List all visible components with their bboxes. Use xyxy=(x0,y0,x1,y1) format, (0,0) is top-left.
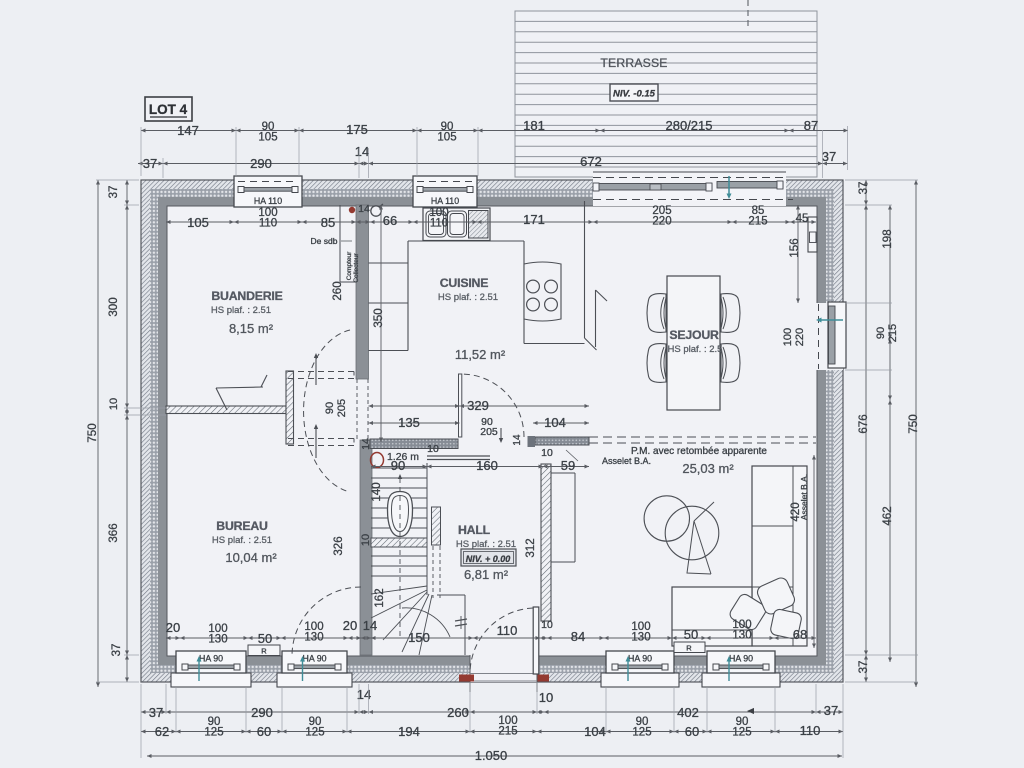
svg-text:Asselet B.A.: Asselet B.A. xyxy=(602,456,651,466)
svg-text:HS plaf. : 2.51: HS plaf. : 2.51 xyxy=(438,292,498,303)
svg-text:366: 366 xyxy=(108,523,120,542)
svg-text:402: 402 xyxy=(677,705,699,720)
svg-text:CUISINE: CUISINE xyxy=(440,276,488,290)
svg-text:90: 90 xyxy=(324,402,336,414)
svg-text:1.050: 1.050 xyxy=(475,748,508,763)
svg-text:60: 60 xyxy=(685,724,699,739)
svg-text:37: 37 xyxy=(858,661,870,674)
svg-text:110: 110 xyxy=(800,723,821,738)
svg-text:14: 14 xyxy=(512,434,523,446)
svg-text:110: 110 xyxy=(259,218,277,230)
svg-text:215: 215 xyxy=(748,216,767,228)
svg-text:37: 37 xyxy=(111,644,123,657)
svg-text:14: 14 xyxy=(363,618,377,633)
svg-text:50: 50 xyxy=(684,627,698,642)
svg-text:14: 14 xyxy=(355,144,369,159)
svg-text:37: 37 xyxy=(824,703,838,718)
svg-text:20: 20 xyxy=(166,620,180,635)
svg-text:37: 37 xyxy=(143,156,157,171)
svg-text:HA 90: HA 90 xyxy=(199,654,223,664)
svg-text:R: R xyxy=(686,644,692,653)
svg-text:HA 110: HA 110 xyxy=(431,196,459,206)
svg-text:105: 105 xyxy=(258,132,277,144)
svg-text:290: 290 xyxy=(251,705,273,720)
svg-text:HS plaf. : 2.51: HS plaf. : 2.51 xyxy=(211,305,271,316)
svg-text:215: 215 xyxy=(887,324,899,342)
svg-text:14: 14 xyxy=(360,438,372,450)
svg-text:10: 10 xyxy=(360,534,372,546)
svg-text:66: 66 xyxy=(383,213,397,228)
svg-text:50: 50 xyxy=(258,631,272,646)
svg-text:205: 205 xyxy=(480,426,498,438)
svg-text:300: 300 xyxy=(108,297,120,316)
svg-text:6,81 m²: 6,81 m² xyxy=(464,567,509,582)
svg-text:130: 130 xyxy=(631,632,650,644)
svg-text:181: 181 xyxy=(523,118,545,133)
svg-text:10: 10 xyxy=(541,619,553,631)
svg-text:37: 37 xyxy=(149,705,163,720)
svg-text:45: 45 xyxy=(796,213,809,225)
svg-text:11,52 m²: 11,52 m² xyxy=(455,347,506,362)
svg-text:60: 60 xyxy=(257,724,271,739)
svg-text:HA 90: HA 90 xyxy=(628,654,652,664)
svg-text:105: 105 xyxy=(437,132,456,144)
svg-text:HS plaf. : 2.5: HS plaf. : 2.5 xyxy=(668,344,723,355)
svg-text:P.M. avec retombée apparente: P.M. avec retombée apparente xyxy=(631,446,767,457)
svg-text:85: 85 xyxy=(321,215,335,230)
svg-text:HA 110: HA 110 xyxy=(254,196,282,206)
svg-text:105: 105 xyxy=(187,215,209,230)
svg-text:175: 175 xyxy=(346,122,368,137)
svg-text:198: 198 xyxy=(882,229,894,248)
svg-text:171: 171 xyxy=(523,212,545,227)
svg-text:290: 290 xyxy=(250,156,272,171)
svg-text:135: 135 xyxy=(398,415,420,430)
svg-text:312: 312 xyxy=(525,538,537,557)
svg-text:84: 84 xyxy=(571,629,585,644)
svg-text:HA 90: HA 90 xyxy=(303,654,327,664)
svg-text:TERRASSE: TERRASSE xyxy=(600,56,667,70)
svg-text:672: 672 xyxy=(580,154,602,169)
svg-text:HS plaf. : 2.51: HS plaf. : 2.51 xyxy=(456,539,516,550)
svg-text:130: 130 xyxy=(304,632,323,644)
svg-text:104: 104 xyxy=(584,724,606,739)
svg-text:62: 62 xyxy=(155,724,169,739)
svg-text:37: 37 xyxy=(858,182,870,195)
svg-text:110: 110 xyxy=(497,623,518,638)
svg-text:280/215: 280/215 xyxy=(666,118,713,133)
svg-text:160: 160 xyxy=(476,458,498,473)
svg-text:420: 420 xyxy=(790,502,802,521)
svg-text:220: 220 xyxy=(794,328,806,346)
svg-text:HS plaf. : 2.51: HS plaf. : 2.51 xyxy=(212,535,272,546)
svg-text:10: 10 xyxy=(427,443,439,455)
svg-text:100: 100 xyxy=(782,328,794,346)
svg-text:162: 162 xyxy=(374,588,386,607)
svg-text:205: 205 xyxy=(336,399,348,417)
svg-text:140: 140 xyxy=(371,482,383,501)
svg-text:87: 87 xyxy=(804,118,818,133)
svg-text:37: 37 xyxy=(108,186,120,199)
svg-text:130: 130 xyxy=(732,630,751,642)
svg-text:750: 750 xyxy=(87,423,99,442)
svg-text:10: 10 xyxy=(541,447,553,459)
svg-text:125: 125 xyxy=(732,727,751,739)
svg-text:676: 676 xyxy=(858,414,870,433)
svg-text:329: 329 xyxy=(467,398,489,413)
svg-text:10: 10 xyxy=(108,398,120,410)
svg-text:10,04 m²: 10,04 m² xyxy=(225,550,277,565)
svg-text:104: 104 xyxy=(544,415,566,430)
svg-text:HA 90: HA 90 xyxy=(729,654,753,664)
svg-text:90: 90 xyxy=(875,327,887,339)
svg-text:462: 462 xyxy=(882,506,894,525)
svg-text:220: 220 xyxy=(652,216,671,228)
svg-text:NIV. -0.15: NIV. -0.15 xyxy=(613,89,656,100)
svg-text:350: 350 xyxy=(373,308,385,327)
svg-text:130: 130 xyxy=(208,634,227,646)
svg-text:R: R xyxy=(261,647,267,656)
svg-text:260: 260 xyxy=(447,705,469,720)
svg-text:260: 260 xyxy=(332,281,344,300)
svg-text:BUANDERIE: BUANDERIE xyxy=(211,289,282,303)
svg-text:BUREAU: BUREAU xyxy=(216,519,268,533)
svg-text:68: 68 xyxy=(793,627,807,642)
svg-text:110: 110 xyxy=(430,218,448,230)
svg-text:SEJOUR: SEJOUR xyxy=(669,328,719,342)
svg-text:HALL: HALL xyxy=(458,523,491,537)
svg-text:90: 90 xyxy=(391,458,405,473)
svg-text:150: 150 xyxy=(408,630,430,645)
svg-text:156: 156 xyxy=(789,238,801,257)
svg-text:NIV. + 0.00: NIV. + 0.00 xyxy=(466,554,510,564)
svg-text:125: 125 xyxy=(305,727,324,739)
svg-text:125: 125 xyxy=(204,727,223,739)
svg-text:14: 14 xyxy=(358,203,370,215)
svg-text:147: 147 xyxy=(177,123,199,138)
svg-text:Compteur: Compteur xyxy=(346,251,353,280)
svg-text:Collecteur: Collecteur xyxy=(353,253,360,283)
svg-text:194: 194 xyxy=(398,724,420,739)
svg-text:59: 59 xyxy=(561,458,575,473)
svg-text:10: 10 xyxy=(539,690,553,705)
svg-text:125: 125 xyxy=(632,727,651,739)
svg-text:8,15 m²: 8,15 m² xyxy=(229,321,274,336)
svg-text:LOT 4: LOT 4 xyxy=(149,102,188,117)
svg-text:750: 750 xyxy=(908,414,920,433)
svg-text:326: 326 xyxy=(333,536,345,555)
svg-text:37: 37 xyxy=(822,149,836,164)
svg-text:20: 20 xyxy=(343,618,357,633)
svg-text:De sdb: De sdb xyxy=(311,236,338,246)
svg-text:25,03 m²: 25,03 m² xyxy=(682,461,734,476)
svg-text:215: 215 xyxy=(498,726,517,738)
